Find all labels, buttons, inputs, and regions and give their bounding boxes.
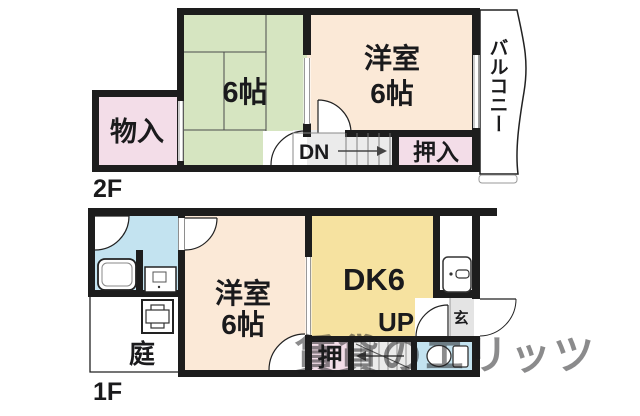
front-door-arc <box>480 299 516 336</box>
label-2f-storage: 物入 <box>110 117 164 147</box>
floor-2: 6帖 洋室 6帖 物入 押入 DN バルコニー 2F <box>92 8 526 203</box>
washing-machine-icon <box>142 300 173 333</box>
watermark-text: 賃貸のエリッツ <box>294 332 596 378</box>
label-floor-2f: 2F <box>93 175 122 203</box>
balcony-floor-edge <box>479 175 517 183</box>
label-2f-tatami: 6帖 <box>222 76 267 109</box>
label-1f-dk6: DK6 <box>343 262 405 297</box>
label-2f-western-1: 洋室 <box>364 42 420 74</box>
floor-plan: 6帖 洋室 6帖 物入 押入 DN バルコニー 2F <box>0 0 640 416</box>
label-1f-garden: 庭 <box>129 339 155 369</box>
label-2f-western-2: 6帖 <box>370 78 414 109</box>
label-1f-western-2: 6帖 <box>221 309 265 340</box>
label-1f-western-1: 洋室 <box>215 277 271 309</box>
washbasin-icon <box>145 267 176 292</box>
kitchen-sink-icon <box>443 257 471 292</box>
label-2f-balcony: バルコニー <box>487 38 509 133</box>
label-floor-1f: 1F <box>93 378 122 406</box>
label-2f-oshiire: 押入 <box>413 139 459 165</box>
label-2f-dn: DN <box>299 141 329 164</box>
label-1f-entrance: 玄 <box>453 309 468 327</box>
bathtub-icon <box>98 259 136 290</box>
